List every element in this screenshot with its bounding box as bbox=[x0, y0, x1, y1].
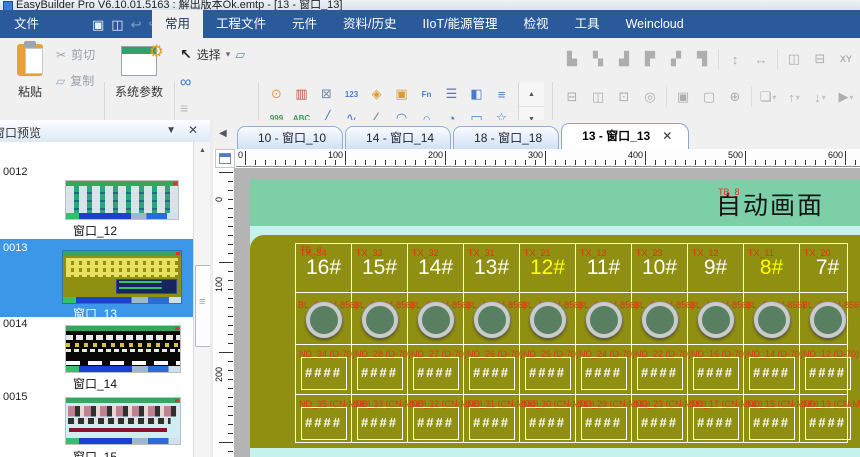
ruler-tick bbox=[228, 406, 233, 407]
ruler-tick bbox=[228, 271, 233, 272]
ruler-tick bbox=[228, 361, 233, 362]
bring-to-front-icon[interactable]: ❏▾ bbox=[756, 86, 780, 108]
option-list-icon[interactable]: ≡ bbox=[489, 82, 514, 106]
grid-row: ND_35 (CN-MD6)####ND_33 (CN-MD5)####ND_3… bbox=[296, 395, 847, 442]
ruler-tick bbox=[715, 160, 716, 165]
grid-cell: BL_20 (M-856) bbox=[632, 293, 688, 344]
text-object-tag: TX_20 bbox=[804, 248, 831, 258]
grid-cell: TX_2310# bbox=[632, 244, 688, 292]
grid-cell: ND_15 (CN-MD9)#### bbox=[744, 395, 800, 442]
ruler-tick bbox=[515, 160, 516, 165]
grid-cell: ND_33 (CN-MD5)#### bbox=[352, 395, 408, 442]
ruler-label: 400 bbox=[611, 150, 643, 160]
thumb-bottombar bbox=[63, 297, 181, 303]
tool-scroll-up-icon[interactable]: ▲ bbox=[519, 82, 544, 107]
ruler-tick bbox=[625, 160, 626, 165]
numeric-display[interactable]: #### bbox=[413, 407, 459, 440]
ruler-tick bbox=[675, 160, 676, 165]
tab-label: 10 - 窗口_10 bbox=[258, 131, 326, 145]
grid-cell: ND_17 (CN-MD0)#### bbox=[688, 395, 744, 442]
ruler-tick bbox=[245, 151, 246, 165]
grid-cell: BL_22 (M-856) bbox=[408, 293, 464, 344]
ruler-tick bbox=[228, 235, 233, 236]
v-spacing-icon[interactable]: ⊟ bbox=[808, 48, 832, 70]
ribbon: 粘贴 ✂ 剪切 ▱ 复制 ⚙ 系统参数 ↖ 选择 ▾ ▱ ∞ ≡ ⊙▥⊠123◈… bbox=[0, 38, 860, 121]
ruler-label: 0 bbox=[236, 150, 243, 160]
ruler-tick bbox=[335, 160, 336, 165]
ruler-tick bbox=[228, 343, 233, 344]
compile-icon[interactable]: ◫ bbox=[111, 18, 123, 31]
numeric-display[interactable]: #### bbox=[469, 407, 515, 440]
ruler-tick bbox=[645, 151, 646, 165]
ruler-tick bbox=[228, 280, 233, 281]
ruler-tick bbox=[445, 151, 446, 165]
move-up-layer-icon[interactable]: ↑▾ bbox=[782, 86, 806, 108]
grid-cell: ND_26 (D-70)#### bbox=[464, 345, 520, 394]
ruler-tick bbox=[725, 160, 726, 165]
ruler-tick bbox=[665, 160, 666, 165]
ruler-tick bbox=[228, 226, 233, 227]
ruler-tick bbox=[465, 160, 466, 165]
ruler-tick bbox=[228, 181, 233, 182]
ruler-tick bbox=[275, 160, 276, 165]
window-thumbnail[interactable] bbox=[66, 398, 180, 444]
ruler-tick bbox=[615, 160, 616, 165]
ruler-tick bbox=[745, 151, 746, 165]
thumb-bottombar bbox=[66, 438, 180, 444]
ruler-tick bbox=[255, 160, 256, 165]
numeric-display[interactable]: #### bbox=[581, 407, 627, 440]
bring-to-front-icon-caret[interactable]: ▾ bbox=[772, 93, 776, 102]
grid-cell: BL_19 (M-856) bbox=[688, 293, 744, 344]
ribbon-tab-8[interactable]: Weincloud bbox=[613, 10, 697, 38]
grid-object-tag: TB_0 bbox=[300, 245, 322, 255]
design-canvas[interactable]: TB_8 自动画面 TB_0 TX_3416#TX_3315#TX_3214#T… bbox=[234, 168, 860, 457]
window-icon bbox=[219, 153, 231, 164]
grid-cell: ND_32 (CN-MD5)#### bbox=[408, 395, 464, 442]
ruler-tick bbox=[505, 160, 506, 165]
align-right-icon[interactable]: ▟ bbox=[612, 48, 636, 70]
copy-button[interactable]: ▱ 复制 bbox=[56, 72, 94, 89]
ruler-tick bbox=[455, 160, 456, 165]
toolbar-separator bbox=[751, 87, 752, 107]
grid-cell: BL_21 (M-856) bbox=[576, 293, 632, 344]
ruler-tick bbox=[855, 160, 856, 165]
document-tabs: 10 - 窗口_1014 - 窗口_1418 - 窗口_1813 - 窗口_13… bbox=[237, 123, 691, 149]
unit-grid: TX_3416#TX_3315#TX_3214#TX_3113#TX_2112#… bbox=[295, 243, 848, 443]
grid-cell: ND_34 (D-70)#### bbox=[296, 345, 352, 394]
system-parameters-icon: ⚙ bbox=[121, 46, 157, 76]
document-tab-2[interactable]: 14 - 窗口_14 bbox=[345, 126, 451, 149]
grid-cell: ND_16 (D-70)#### bbox=[688, 345, 744, 394]
grid-cell: ND_35 (CN-MD6)#### bbox=[296, 395, 352, 442]
grid-cell: ND_22 (D-70)#### bbox=[632, 345, 688, 394]
tab-label: 14 - 窗口_14 bbox=[366, 131, 434, 145]
grid-row: ND_34 (D-70)####ND_28 (D-70)####ND_27 (D… bbox=[296, 345, 847, 395]
same-width-icon[interactable]: ↔ bbox=[749, 48, 773, 70]
gear-icon: ⚙ bbox=[149, 43, 164, 60]
window-name[interactable]: 窗口_13 bbox=[0, 305, 190, 322]
same-width-size-icon[interactable]: ⊟ bbox=[560, 86, 584, 108]
ruler-tick bbox=[815, 160, 816, 165]
combo-button-icon[interactable]: ☰ bbox=[439, 82, 464, 106]
tab-close-icon[interactable]: ✕ bbox=[662, 129, 672, 143]
align-center-icon[interactable]: ▚ bbox=[586, 48, 610, 70]
ribbon-tab-bar: 文件 ▣◫↩↪▾ 常用工程文件元件资料/历史IIoT/能源管理检视工具Weinc… bbox=[0, 10, 860, 38]
move-up-layer-icon-caret[interactable]: ▾ bbox=[796, 93, 800, 102]
ruler-tick bbox=[228, 208, 233, 209]
grid-cell: BL_11 (M-856) bbox=[744, 293, 800, 344]
numeric-display[interactable]: #### bbox=[525, 357, 571, 390]
grid-cell: BL_12 (M-856) bbox=[520, 293, 576, 344]
numeric-display[interactable]: #### bbox=[525, 407, 571, 440]
ruler-tick bbox=[228, 307, 233, 308]
save-icon[interactable]: ▣ bbox=[92, 18, 104, 31]
ruler-tick bbox=[635, 160, 636, 165]
ribbon-tab-1[interactable]: 常用 bbox=[152, 10, 203, 38]
grid-cell: BL_27 (M-856) bbox=[800, 293, 855, 344]
numeric-display[interactable]: #### bbox=[469, 357, 515, 390]
window-number: 0015 bbox=[3, 391, 27, 403]
group-icon[interactable]: ▣ bbox=[671, 86, 695, 108]
window-name[interactable]: 窗口_15 bbox=[0, 448, 190, 457]
file-menu-button[interactable]: 文件 bbox=[0, 10, 53, 38]
cut-icon: ✂ bbox=[56, 48, 66, 62]
align-middle-icon[interactable]: ▞ bbox=[664, 48, 688, 70]
grid-cell: BL_15 (M-856) bbox=[464, 293, 520, 344]
ribbon-tab-4[interactable]: 资料/历史 bbox=[330, 10, 409, 38]
h-spacing-icon[interactable]: ◫ bbox=[782, 48, 806, 70]
grid-cell: ND_25 (D-70)#### bbox=[520, 345, 576, 394]
indicator-lamp[interactable] bbox=[642, 302, 678, 338]
ruler-label: 200 bbox=[411, 150, 443, 160]
bit-lamp-icon[interactable]: ⊙ bbox=[264, 82, 289, 106]
ruler-tick bbox=[585, 160, 586, 165]
grid-row: TX_3416#TX_3315#TX_3214#TX_3113#TX_2112#… bbox=[296, 244, 847, 293]
multi-duplicate-button[interactable]: ≡ bbox=[180, 100, 188, 116]
align-toolbar-row1: ▙▚▟▛▞▜↕↔◫⊟XY bbox=[560, 48, 860, 70]
ruler-tick bbox=[228, 334, 233, 335]
align-top-icon[interactable]: ▛ bbox=[638, 48, 662, 70]
tab-scroll-left-icon[interactable]: ◀ bbox=[219, 128, 227, 139]
window-number: 0013 bbox=[3, 242, 27, 254]
same-height-size-icon[interactable]: ◫ bbox=[586, 86, 610, 108]
ruler-tick bbox=[345, 151, 346, 165]
ruler-tick bbox=[228, 433, 233, 434]
window-thumbnail[interactable] bbox=[63, 251, 181, 303]
text-object-tag: TX_33 bbox=[356, 248, 383, 258]
grid-cell: BL_29 (M-856) bbox=[296, 293, 352, 344]
move-down-layer-icon[interactable]: ↓▾ bbox=[808, 86, 832, 108]
ruler-tick bbox=[805, 160, 806, 165]
ruler-tick bbox=[228, 298, 233, 299]
scrollbar-thumb[interactable] bbox=[195, 265, 211, 347]
ruler-tick bbox=[695, 160, 696, 165]
ruler-tick bbox=[325, 160, 326, 165]
text-object-tag: TX_12 bbox=[692, 248, 719, 258]
ruler-tick bbox=[365, 160, 366, 165]
function-key-icon[interactable]: ◈ bbox=[364, 82, 389, 106]
ruler-tick bbox=[705, 160, 706, 165]
grid-cell: ND_30 (CN-MD3)#### bbox=[520, 395, 576, 442]
thumb-bottombar bbox=[66, 366, 180, 372]
panel-close-icon[interactable]: ✕ bbox=[188, 123, 198, 137]
cursor-icon: ↖ bbox=[180, 46, 192, 63]
ruler-tick bbox=[575, 160, 576, 165]
numeric-display[interactable]: #### bbox=[413, 357, 459, 390]
window-thumbnail[interactable] bbox=[66, 181, 178, 219]
indicator-lamp[interactable] bbox=[362, 302, 398, 338]
select-caret-icon[interactable]: ▾ bbox=[226, 49, 231, 60]
ruler-tick bbox=[375, 160, 376, 165]
vertical-ruler: 0100200 bbox=[213, 168, 235, 457]
paste-button[interactable]: 粘贴 bbox=[4, 44, 56, 100]
indicator-lamp[interactable] bbox=[418, 302, 454, 338]
window-name[interactable]: 窗口_14 bbox=[0, 375, 190, 392]
grid-cell: TX_3214# bbox=[408, 244, 464, 292]
numeric-display[interactable]: #### bbox=[301, 407, 347, 440]
ruler-tick bbox=[228, 379, 233, 380]
toolbar-separator bbox=[666, 87, 667, 107]
ruler-tick bbox=[485, 160, 486, 165]
ruler-tick bbox=[228, 451, 233, 452]
ruler-tick bbox=[228, 316, 233, 317]
ruler-tick bbox=[228, 289, 233, 290]
ribbon-tab-7[interactable]: 工具 bbox=[562, 10, 613, 38]
ruler-tick bbox=[228, 244, 233, 245]
ruler-label: 0 bbox=[214, 172, 224, 202]
grid-cell: BL_23 (M-856) bbox=[352, 293, 408, 344]
ruler-tick bbox=[228, 253, 233, 254]
ribbon-tab-3[interactable]: 元件 bbox=[279, 10, 330, 38]
numeric-display[interactable]: #### bbox=[805, 407, 851, 440]
grid-cell: ND_12 (D-70)#### bbox=[800, 345, 855, 394]
indicator-lamp[interactable] bbox=[530, 302, 566, 338]
transform-icon[interactable]: ◎ bbox=[638, 86, 662, 108]
ruler-corner-button[interactable] bbox=[215, 149, 235, 168]
ruler-tick bbox=[415, 160, 416, 165]
window-name[interactable]: 窗口_12 bbox=[0, 222, 190, 239]
grid-cell: ND_27 (D-70)#### bbox=[408, 345, 464, 394]
thumb-body bbox=[66, 403, 180, 438]
toolbar-separator bbox=[718, 49, 719, 69]
window-thumbnail[interactable] bbox=[66, 326, 180, 372]
numeric-display[interactable]: #### bbox=[581, 357, 627, 390]
same-size-icon[interactable]: ⊡ bbox=[612, 86, 636, 108]
ruler-label: 300 bbox=[511, 150, 543, 160]
ruler-tick bbox=[228, 199, 233, 200]
ruler-label: 100 bbox=[214, 262, 224, 292]
ruler-tick bbox=[685, 160, 686, 165]
scroll-up-icon[interactable]: ▲ bbox=[194, 142, 211, 158]
thumb-body bbox=[66, 331, 180, 366]
ruler-tick bbox=[265, 160, 266, 165]
flip-icon[interactable]: ▶▾ bbox=[834, 86, 858, 108]
cut-button[interactable]: ✂ 剪切 bbox=[56, 46, 95, 63]
ruler-tick bbox=[845, 151, 846, 165]
ruler-tick bbox=[835, 160, 836, 165]
ruler-tick bbox=[535, 160, 536, 165]
pin-icon[interactable]: ⊕ bbox=[723, 86, 747, 108]
indicator-lamp[interactable] bbox=[306, 302, 342, 338]
undo-icon: ↩ bbox=[131, 18, 142, 31]
ruler-label: 100 bbox=[311, 150, 343, 160]
ruler-tick bbox=[435, 160, 436, 165]
indicator-lamp[interactable] bbox=[698, 302, 734, 338]
ribbon-tab-6[interactable]: 检视 bbox=[511, 10, 562, 38]
link-icon: ∞ bbox=[180, 74, 191, 92]
text-object-tag: TX_23 bbox=[636, 248, 663, 258]
grid-cell: TX_129# bbox=[688, 244, 744, 292]
ruler-tick bbox=[228, 397, 233, 398]
xy-position-icon[interactable]: XY bbox=[834, 48, 858, 70]
multi-window-icon[interactable]: ▱ bbox=[235, 47, 245, 63]
grid-cell: TX_1311# bbox=[576, 244, 632, 292]
same-height-icon[interactable]: ↕ bbox=[723, 48, 747, 70]
ruler-tick bbox=[228, 217, 233, 218]
grid-cell: TX_3315# bbox=[352, 244, 408, 292]
panel-header: 窗口预览 ▼ ✕ bbox=[0, 120, 210, 143]
ruler-tick bbox=[545, 151, 546, 165]
ruler-label: 200 bbox=[214, 352, 224, 382]
ruler-tick bbox=[219, 442, 233, 443]
grid-cell: ND_31 (CN-MD4)#### bbox=[464, 395, 520, 442]
ruler-tick bbox=[785, 160, 786, 165]
title-object-tag: TB_8 bbox=[718, 187, 740, 197]
grid-row: BL_29 (M-856)BL_23 (M-856)BL_22 (M-856)B… bbox=[296, 293, 847, 345]
thumb-body bbox=[66, 186, 178, 213]
copy-icon: ▱ bbox=[56, 74, 65, 88]
move-down-layer-icon-caret[interactable]: ▾ bbox=[822, 93, 826, 102]
document-tab-3[interactable]: 18 - 窗口_18 bbox=[453, 126, 559, 149]
window-list: 0012窗口_120013窗口_130014窗口_140015窗口_150016 bbox=[0, 142, 193, 457]
window-number: 0014 bbox=[3, 318, 27, 330]
document-tab-1[interactable]: 10 - 窗口_10 bbox=[237, 126, 343, 149]
ruler-tick bbox=[655, 160, 656, 165]
document-tab-bar: ◀ 10 - 窗口_1014 - 窗口_1418 - 窗口_1813 - 窗口_… bbox=[213, 120, 860, 149]
grid-cell: ND_29 (CN-MD2)#### bbox=[576, 395, 632, 442]
system-parameters-button[interactable]: ⚙ 系统参数 bbox=[108, 46, 170, 100]
flip-icon-caret[interactable]: ▾ bbox=[849, 93, 853, 102]
grid-cell: TX_2112# bbox=[520, 244, 576, 292]
ruler-tick bbox=[495, 160, 496, 165]
numeric-display[interactable]: #### bbox=[805, 357, 851, 390]
numeric-display[interactable]: #### bbox=[637, 357, 683, 390]
text-object-tag: TX_11 bbox=[748, 248, 774, 258]
horizontal-ruler: 0100200300400500600 bbox=[236, 149, 860, 167]
ruler-tick bbox=[295, 160, 296, 165]
easybuilder-pro-window: EasyBuilder Pro V6.10.01.5163 : 解出版本Ok.e… bbox=[0, 0, 860, 457]
set-word-icon[interactable]: 123 bbox=[339, 82, 364, 106]
numeric-display[interactable]: #### bbox=[357, 407, 403, 440]
text-object-tag: TX_31 bbox=[468, 248, 495, 258]
grid-cell: ND_28 (D-70)#### bbox=[352, 345, 408, 394]
panel-menu-caret-icon[interactable]: ▼ bbox=[166, 125, 176, 136]
ruler-tick bbox=[425, 160, 426, 165]
grid-cell: TX_3113# bbox=[464, 244, 520, 292]
ruler-tick bbox=[315, 160, 316, 165]
window-number: 0012 bbox=[3, 166, 27, 178]
ungroup-icon[interactable]: ▢ bbox=[697, 86, 721, 108]
thumb-bottombar bbox=[66, 213, 178, 219]
grid-cell: ND_14 (D-70)#### bbox=[744, 345, 800, 394]
panel-title: 窗口预览 bbox=[0, 124, 41, 141]
ruler-tick bbox=[525, 160, 526, 165]
numeric-display[interactable]: #### bbox=[357, 357, 403, 390]
ruler-tick bbox=[405, 160, 406, 165]
paste-icon bbox=[17, 44, 43, 76]
toolbar-separator bbox=[777, 49, 778, 69]
toggle-switch-icon[interactable]: ▣ bbox=[389, 82, 414, 106]
ruler-tick bbox=[825, 160, 826, 165]
ruler-tick bbox=[305, 160, 306, 165]
ruler-tick bbox=[385, 160, 386, 165]
slider-icon[interactable]: ◧ bbox=[464, 82, 489, 106]
numeric-display[interactable]: #### bbox=[637, 407, 683, 440]
ruler-tick bbox=[228, 424, 233, 425]
ruler-label: 600 bbox=[811, 150, 843, 160]
ruler-tick bbox=[735, 160, 736, 165]
ruler-tick bbox=[775, 160, 776, 165]
align-left-icon[interactable]: ▙ bbox=[560, 48, 584, 70]
grid-cell: TX_207# bbox=[800, 244, 855, 292]
indicator-lamp[interactable] bbox=[474, 302, 510, 338]
ruler-tick bbox=[605, 160, 606, 165]
indicator-lamp[interactable] bbox=[810, 302, 846, 338]
ruler-tick bbox=[555, 160, 556, 165]
numeric-display[interactable]: #### bbox=[693, 357, 739, 390]
ruler-tick bbox=[228, 190, 233, 191]
numeric-display[interactable]: #### bbox=[749, 407, 795, 440]
ruler-tick bbox=[228, 415, 233, 416]
set-bit-icon[interactable]: ⊠ bbox=[314, 82, 339, 106]
tab-label: 18 - 窗口_18 bbox=[474, 131, 542, 145]
ruler-tick bbox=[765, 160, 766, 165]
indicator-lamp[interactable] bbox=[754, 302, 790, 338]
tab-label: 13 - 窗口_13 bbox=[582, 129, 650, 143]
grid-cell: ND_23 (CN-MD1)#### bbox=[632, 395, 688, 442]
ruler-tick bbox=[595, 160, 596, 165]
ruler-tick bbox=[228, 388, 233, 389]
link-tool-button[interactable]: ∞ bbox=[180, 74, 191, 92]
numeric-display[interactable]: #### bbox=[693, 407, 739, 440]
ribbon-tab-5[interactable]: IIoT/能源管理 bbox=[410, 10, 511, 38]
ruler-tick bbox=[755, 160, 756, 165]
ruler-tick bbox=[285, 160, 286, 165]
thumb-body bbox=[63, 256, 181, 297]
ribbon-tabs: 常用工程文件元件资料/历史IIoT/能源管理检视工具Weincloud bbox=[152, 10, 697, 38]
text-object-tag: TX_13 bbox=[580, 248, 607, 258]
numeric-display[interactable]: #### bbox=[301, 357, 347, 390]
ruler-tick bbox=[228, 325, 233, 326]
document-tab-4[interactable]: 13 - 窗口_13✕ bbox=[561, 123, 689, 149]
text-object-tag: TX_21 bbox=[524, 248, 551, 258]
numeric-display[interactable]: #### bbox=[749, 357, 795, 390]
ruler-label: 500 bbox=[711, 150, 743, 160]
ruler-tick bbox=[475, 160, 476, 165]
word-lamp-icon[interactable]: ▥ bbox=[289, 82, 314, 106]
grid-cell: ND_24 (D-70)#### bbox=[576, 345, 632, 394]
select-tool[interactable]: ↖ 选择 ▾ ▱ bbox=[180, 46, 245, 63]
indicator-lamp[interactable] bbox=[586, 302, 622, 338]
ribbon-tab-2[interactable]: 工程文件 bbox=[203, 10, 279, 38]
macro-button-icon[interactable]: Fn bbox=[414, 82, 439, 106]
grid-cell: ND_13 (CN-MD8)#### bbox=[800, 395, 855, 442]
ruler-tick bbox=[228, 370, 233, 371]
align-bottom-icon[interactable]: ▜ bbox=[690, 48, 714, 70]
panel-scrollbar[interactable]: ▲ bbox=[193, 142, 211, 457]
duplicate-icon: ≡ bbox=[180, 100, 188, 116]
